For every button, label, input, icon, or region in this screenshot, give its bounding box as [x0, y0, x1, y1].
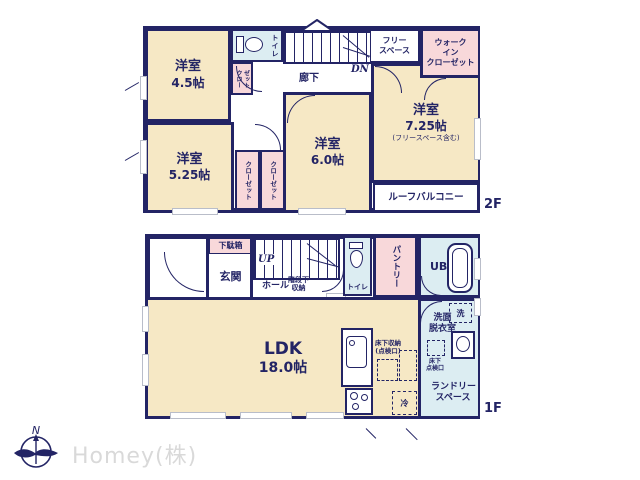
room-2f-yoshitsu-4-5: 洋室 4.5帖: [148, 31, 231, 122]
stove-icon: [345, 388, 373, 415]
under-stairs-storage-label: 階段下 収納: [288, 276, 309, 293]
shoe-box: 下駄箱: [209, 238, 252, 254]
ub-label: UB: [430, 260, 447, 274]
entrance-hall: 玄関: [209, 254, 252, 297]
floor1-label: 1F: [484, 401, 502, 416]
stove-burner: [361, 394, 368, 401]
room-label: 洋室: [314, 137, 340, 153]
free-space-label-line1: フリー: [383, 36, 407, 46]
wash-basin-bowl: [456, 336, 470, 352]
floor-storage-box: [399, 350, 417, 381]
ldk-label: LDK: [264, 339, 302, 360]
hall-label: ホール: [262, 278, 289, 291]
toilet-bowl-icon: [245, 37, 263, 52]
window: [474, 118, 481, 160]
wic-label-line3: クローゼット: [427, 58, 475, 68]
closet-2f-b: クローゼット: [260, 150, 285, 210]
line2: スペース: [431, 393, 475, 404]
walk-in-closet-2f: ウォーク イン クローゼット: [420, 31, 478, 78]
window: [306, 412, 344, 419]
wic-label-line1: ウォーク: [435, 38, 467, 48]
floor-hatch-label: 床下 点検口: [426, 358, 444, 372]
closet-label: クローゼット: [243, 161, 251, 200]
window: [140, 76, 147, 100]
floor-storage-label: 床下収納 (点検口): [375, 340, 401, 356]
laundry-space-label: ランドリー スペース: [431, 382, 475, 405]
compass-north-icon: N: [10, 420, 62, 476]
stove-burner: [350, 392, 358, 400]
free-space-label-line2: スペース: [379, 46, 410, 56]
fridge-label: 冷: [401, 398, 409, 409]
room-2f-yoshitsu-5-25: 洋室 5.25帖: [148, 122, 234, 210]
room-size: 6.0帖: [311, 153, 344, 168]
balcony-label: ルーフバルコニー: [388, 192, 463, 204]
room-note: (フリースペース含む): [392, 134, 459, 143]
closet-2f-a: クローゼット: [235, 150, 260, 210]
vent-mark: [366, 428, 377, 439]
wic-label-line2: イン: [443, 48, 459, 58]
ldk-size: 18.0帖: [259, 360, 308, 378]
floor-storage-box: [377, 359, 398, 381]
room-size: 5.25帖: [169, 168, 211, 183]
entrance-label: 玄関: [220, 268, 242, 284]
free-space-2f: フリー スペース: [371, 31, 420, 63]
stairs-down-label: DN: [351, 64, 369, 75]
window: [298, 208, 346, 215]
window: [172, 208, 218, 215]
room-label: 洋室: [176, 152, 202, 168]
room-ldk: LDK 18.0帖: [148, 297, 418, 416]
line1: ランドリー: [431, 382, 475, 393]
floor-hatch-box: [427, 340, 445, 356]
washer-label: 洗: [457, 308, 465, 319]
line2: 収納: [288, 284, 309, 292]
roof-balcony: ルーフバルコニー: [373, 183, 479, 212]
vent-mark: [125, 152, 139, 161]
window: [142, 306, 149, 332]
window: [170, 412, 226, 419]
roof-vent-icon: [300, 19, 334, 32]
stairs-up-label: UP: [257, 254, 275, 265]
floorplan-canvas: 洋室 4.5帖 洋室 5.25帖 洋室 6.0帖 洋室 7.25帖 (フリースペ…: [0, 0, 640, 480]
line2: (点検口): [375, 348, 401, 356]
company-watermark: Homey(株): [72, 438, 197, 470]
stairs-2f: [283, 31, 372, 64]
stove-burner: [352, 403, 359, 410]
kitchen-faucet-icon: [349, 340, 355, 346]
room-label: 洋室: [413, 103, 439, 119]
room-size: 7.25帖: [405, 119, 447, 134]
closet-label: クローゼット: [268, 161, 276, 200]
window: [474, 298, 481, 316]
stair-winder-line: [307, 258, 339, 268]
window: [142, 354, 149, 386]
fridge-space: 冷: [392, 391, 417, 415]
vent-mark: [406, 428, 418, 440]
toilet-label: トイレ: [347, 283, 368, 291]
window: [140, 140, 147, 174]
window: [474, 258, 481, 280]
toilet-label: トイレ: [270, 34, 279, 58]
vent-mark: [125, 82, 139, 91]
bathtub-inner: [452, 248, 468, 288]
line2: 点検口: [426, 365, 444, 372]
room-label: 洋室: [175, 59, 201, 75]
window: [240, 412, 292, 419]
floor2-label: 2F: [484, 197, 502, 212]
room-size: 4.5帖: [171, 76, 204, 91]
corridor-label: 廊下: [299, 69, 319, 84]
toilet-tank-icon: [236, 36, 244, 53]
pantry: パントリー: [373, 238, 418, 298]
toilet-tank-icon: [349, 242, 363, 249]
washer-space: 洗: [449, 303, 472, 323]
pantry-label: パントリー: [390, 245, 401, 288]
shoe-box-label: 下駄箱: [219, 241, 243, 251]
